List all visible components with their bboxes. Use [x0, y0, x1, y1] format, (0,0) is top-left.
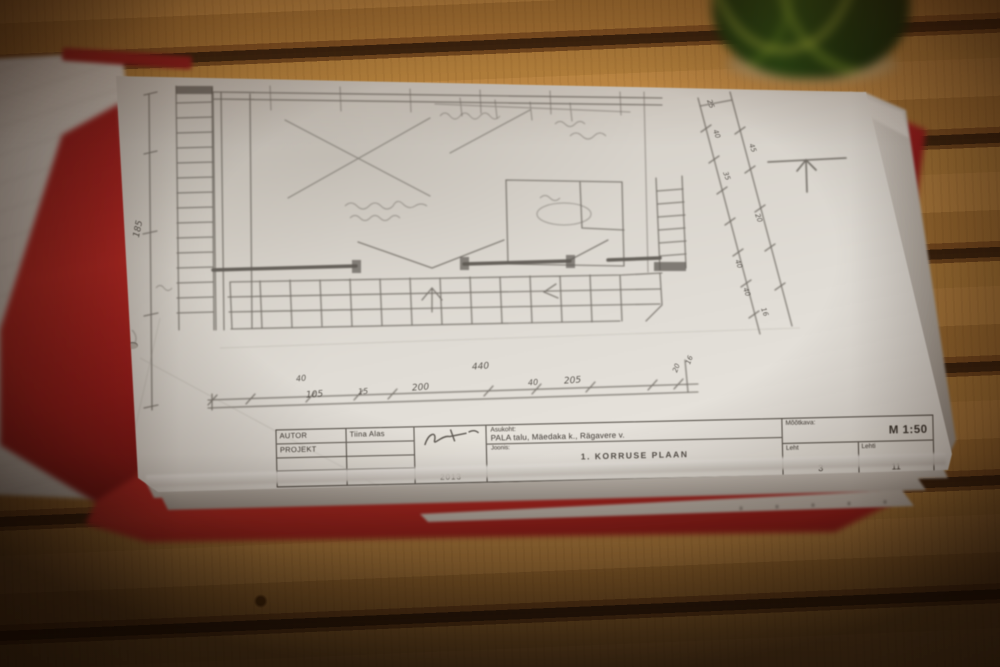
sheet-label: Leht: [786, 445, 799, 452]
scale-value: M 1:50: [889, 424, 928, 437]
dimension-label: 440: [472, 361, 490, 372]
dimension-label: 205: [564, 375, 582, 386]
scale-row: Mõõtkava: M 1:50: [782, 416, 933, 444]
sheets-label: Lehti: [861, 443, 875, 450]
dimension-label: 15: [358, 387, 369, 397]
photo-scene: 185 40 440 105 15 200 40 205 20 16 25 40…: [0, 0, 1000, 667]
drawing-sheet: 185 40 440 105 15 200 40 205 20 16 25 40…: [100, 58, 960, 510]
scale-label: Mõõtkava:: [785, 419, 815, 427]
dimension-label: 200: [412, 382, 430, 393]
signature: [416, 426, 485, 459]
dimension-label: 40: [296, 373, 307, 383]
dimension-label: 40: [528, 378, 539, 388]
dimension-label: 105: [306, 389, 324, 400]
